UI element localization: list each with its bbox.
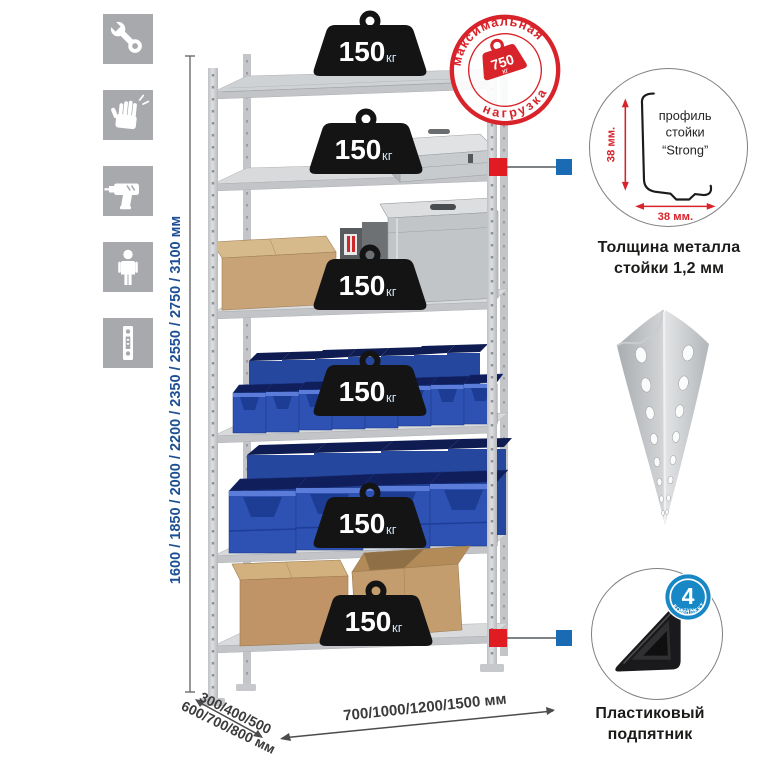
load-unit: кг (386, 522, 397, 537)
callout-red-marker (489, 629, 507, 647)
svg-text:“Strong”: “Strong” (662, 142, 708, 157)
profile-dim-horizontal-label: 38 мм. (658, 211, 693, 223)
profile-caption-line2: стойки 1,2 мм (574, 258, 764, 279)
rack-post-icon (103, 318, 153, 368)
callout-blue-marker (556, 159, 572, 175)
height-dimension-line (185, 56, 195, 692)
shelf5-load-badge: 150 кг (310, 482, 430, 550)
svg-text:стойки: стойки (666, 125, 705, 140)
foot-caption-line2: подпятник (560, 724, 740, 745)
foot-caption-line1: Пластиковый (560, 703, 740, 724)
foot-caption: Пластиковый подпятник (560, 703, 740, 745)
angle-post-image (617, 310, 709, 525)
kit-badge-value: 4 (682, 583, 695, 609)
svg-text:профиль: профиль (659, 108, 712, 123)
load-value: 150 (339, 376, 386, 407)
shelf1-load-badge: 150 кг (310, 10, 430, 78)
profile-caption: Толщина металла стойки 1,2 мм (574, 237, 764, 279)
shelving-rack-infographic: 150 кг 150 кг 150 кг 150 кг 150 кг 150 к… (0, 0, 765, 765)
person-icon (103, 242, 153, 292)
shelf3-load-badge: 150 кг (310, 244, 430, 312)
height-dimension-label: 1600 / 1850 / 2000 / 2200 / 2350 / 2550 … (168, 110, 186, 690)
shelf4-load-badge: 150 кг (310, 350, 430, 418)
profile-dim-vertical-label: 38 мм. (606, 127, 618, 162)
shelf6-load-badge: 150 кг (316, 580, 436, 648)
load-unit: кг (386, 50, 397, 65)
callout-blue-marker (556, 630, 572, 646)
drill-icon (103, 166, 153, 216)
load-unit: кг (382, 148, 393, 163)
load-unit: кг (386, 284, 397, 299)
profile-label: профиль стойки “Strong” (659, 108, 712, 157)
gloves-icon (103, 90, 153, 140)
callout-red-marker (489, 158, 507, 176)
callout-foot (489, 629, 572, 647)
load-value: 150 (345, 606, 392, 637)
shelf2-load-badge: 150 кг (306, 108, 426, 176)
kit-quantity-badge: 4 штуки В КОМПЛЕКТЕ (663, 572, 713, 622)
load-value: 150 (339, 36, 386, 67)
load-value: 150 (335, 134, 382, 165)
profile-vertical-dim (622, 98, 629, 190)
load-unit: кг (392, 620, 403, 635)
profile-horizontal-dim (635, 203, 715, 210)
wrench-icon (103, 14, 153, 64)
callout-shelf2 (489, 158, 572, 176)
max-load-stamp: максимальная нагрузка 750 кг (447, 12, 563, 128)
load-value: 150 (339, 270, 386, 301)
profile-caption-line1: Толщина металла (574, 237, 764, 258)
load-unit: кг (386, 390, 397, 405)
post-profile-detail: 38 мм. 38 мм. профиль стойки “Strong” (589, 68, 748, 227)
load-value: 150 (339, 508, 386, 539)
